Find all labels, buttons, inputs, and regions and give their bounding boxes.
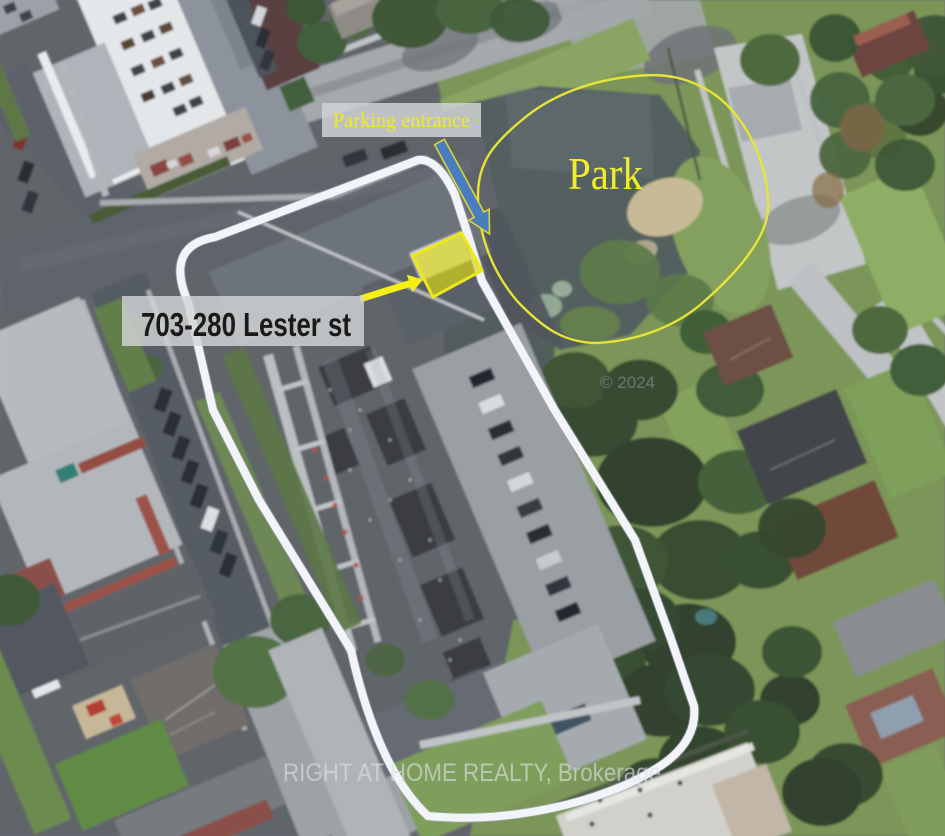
svg-text:© 2024: © 2024 [600, 373, 655, 392]
svg-text:Park: Park [568, 148, 643, 199]
svg-text:RIGHT AT HOME REALTY, Brokerag: RIGHT AT HOME REALTY, Brokerage [283, 759, 661, 787]
svg-text:703-280 Lester st: 703-280 Lester st [141, 306, 351, 343]
svg-text:Parking entrance: Parking entrance [333, 108, 470, 132]
